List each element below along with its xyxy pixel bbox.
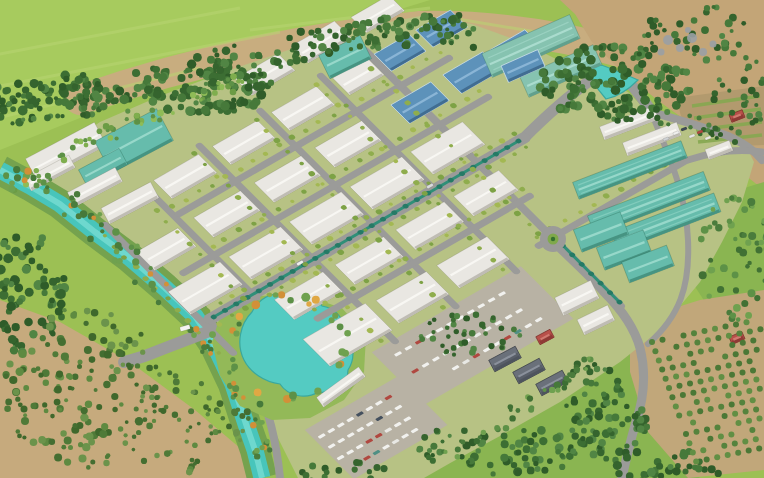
orchard-tree [753,436,759,442]
rock [685,27,691,33]
orchard-tree [722,353,728,359]
orchard-tree [750,338,756,344]
orchard-tree [677,383,683,389]
orchard-tree [670,364,676,370]
orchard-tree [690,390,696,396]
orchard-tree [718,404,724,410]
orchard-tree [732,381,738,387]
orchard-tree [680,362,686,368]
orchard-tree [757,326,763,332]
orchard-tree [757,416,763,422]
orchard-tree [708,406,714,412]
orchard-tree [736,360,742,366]
orchard-tree [705,337,711,343]
orchard-tree [744,319,750,325]
orchard-tree [732,441,738,447]
orchard-tree [698,378,704,384]
orchard-tree [694,369,700,375]
industrial-park-aerial-render [0,0,764,478]
rock [658,49,665,56]
orchard-tree [729,342,735,348]
orchard-tree [722,383,728,389]
orchard-tree [750,397,756,403]
orchard-tree [736,390,742,396]
orchard-tree [743,379,749,385]
orchard-tree [711,385,717,391]
orchard-tree [663,376,669,382]
orchard-tree [740,370,746,376]
orchard-tree [704,427,710,433]
orchard-tree [676,413,682,419]
orchard-tree [698,349,704,355]
orchard-tree [649,339,655,345]
orchard-tree [652,348,658,354]
orchard-tree [659,367,665,373]
orchard-tree [666,355,672,361]
orchard-tree [757,386,763,392]
rock [699,48,707,56]
orchard-tree [694,399,700,405]
scene-svg [0,0,764,478]
orchard-tree [753,377,759,383]
rock [710,41,717,48]
orchard-tree [666,385,672,391]
orchard-tree [753,406,759,412]
orchard-tree [754,347,760,353]
orchard-tree [687,381,693,387]
orchard-tree [740,340,746,346]
orchard-tree [739,399,745,405]
orchard-tree [742,438,748,444]
orchard-tree [680,392,686,398]
orchard-tree [728,431,734,437]
orchard-tree [726,363,732,369]
rock [676,44,684,52]
orchard-tree [715,335,721,341]
orchard-tree [743,409,749,415]
orchard-tree [725,392,731,398]
orchard-tree [707,436,713,442]
orchard-tree [712,326,718,332]
orchard-tree [700,447,706,453]
orchard-tree [735,450,741,456]
orchard-tree [697,408,703,414]
orchard-tree [681,332,687,338]
orchard-tree [684,342,690,348]
orchard-tree [694,339,700,345]
orchard-tree [673,403,679,409]
orchard-tree [719,374,725,380]
orchard-tree [660,337,666,343]
orchard-tree [690,449,696,455]
orchard-tree [691,330,697,336]
orchard-tree [736,331,742,337]
orchard-tree [733,321,739,327]
orchard-tree [714,454,720,460]
orchard-tree [736,420,742,426]
orchard-tree [687,351,693,357]
orchard-tree [732,411,738,417]
orchard-tree [743,349,749,355]
orchard-tree [656,357,662,363]
rock [687,33,697,43]
orchard-tree [691,360,697,366]
orchard-tree [718,434,724,440]
orchard-tree [694,429,700,435]
rock [663,35,673,45]
orchard-tree [715,365,721,371]
orchard-tree [704,397,710,403]
orchard-tree [733,351,739,357]
orchard-tree [725,452,731,458]
orchard-tree [684,371,690,377]
orchard-tree [673,374,679,380]
orchard-tree [683,431,689,437]
orchard-tree [746,388,752,394]
orchard-tree [747,358,753,364]
orchard-tree [701,388,707,394]
orchard-tree [708,346,714,352]
orchard-tree [686,440,692,446]
orchard-tree [715,424,721,430]
orchard-tree [669,394,675,400]
orchard-tree [702,328,708,334]
orchard-tree [749,427,755,433]
orchard-tree [729,402,735,408]
orchard-tree [723,324,729,330]
orchard-tree [687,410,693,416]
orchard-tree [746,418,752,424]
orchard-tree [704,456,710,462]
orchard-tree [750,367,756,373]
orchard-tree [726,333,732,339]
orchard-tree [747,328,753,334]
orchard-tree [708,376,714,382]
orchard-tree [722,413,728,419]
orchard-tree [746,448,752,454]
orchard-tree [756,445,762,451]
orchard-tree [721,443,727,449]
orchard-tree [690,420,696,426]
orchard-tree [705,367,711,373]
orchard-tree [673,344,679,350]
orchard-tree [729,372,735,378]
orchard-tree [693,459,699,465]
